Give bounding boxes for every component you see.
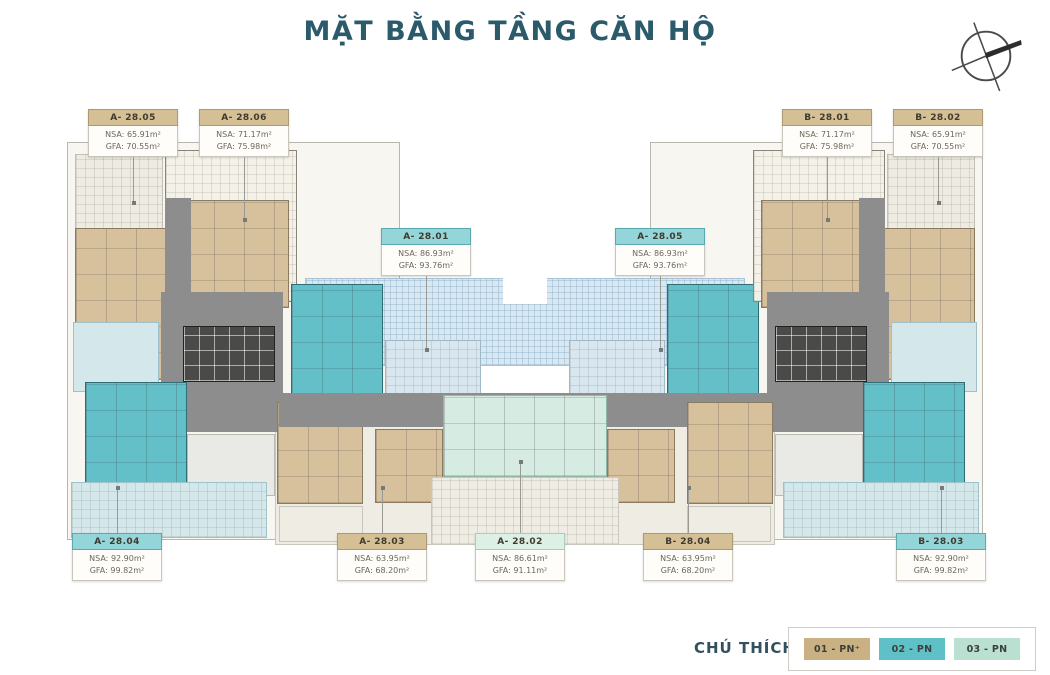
unit-region-a2802[interactable]	[443, 395, 607, 477]
unit-region-a2801[interactable]	[291, 284, 383, 396]
unit-areas: NSA: 86.61m² GFA: 91.11m²	[475, 550, 565, 581]
unit-label-b2801[interactable]: B- 28.01 NSA: 71.17m² GFA: 75.98m²	[782, 109, 872, 157]
leader-line	[133, 157, 134, 203]
unit-areas: NSA: 65.91m² GFA: 70.55m²	[893, 126, 983, 157]
leader-line	[426, 276, 427, 350]
unit-code: B- 28.03	[896, 533, 986, 550]
compass-north-icon	[948, 18, 1024, 94]
unit-label-b2804[interactable]: B- 28.04 NSA: 63.95m² GFA: 68.20m²	[643, 533, 733, 581]
aqua-strip-right	[783, 482, 979, 538]
leader-line	[938, 157, 939, 203]
unit-region-b2803[interactable]	[863, 382, 965, 490]
unit-code: B- 28.04	[643, 533, 733, 550]
unit-region-b2804[interactable]	[687, 402, 773, 504]
unit-code: A- 28.03	[337, 533, 427, 550]
legend-swatch-01pn: 01 - PN⁺	[804, 638, 870, 660]
legend-swatch-02pn: 02 - PN	[879, 638, 945, 660]
unit-label-a2802[interactable]: A- 28.02 NSA: 86.61m² GFA: 91.11m²	[475, 533, 565, 581]
service-core-left	[183, 326, 275, 382]
unit-label-a2804[interactable]: A- 28.04 NSA: 92.90m² GFA: 99.82m²	[72, 533, 162, 581]
legend: 01 - PN⁺ 02 - PN 03 - PN	[788, 627, 1036, 671]
unit-areas: NSA: 92.90m² GFA: 99.82m²	[896, 550, 986, 581]
unit-label-a2805-top[interactable]: A- 28.05 NSA: 65.91m² GFA: 70.55m²	[88, 109, 178, 157]
unit-areas: NSA: 63.95m² GFA: 68.20m²	[643, 550, 733, 581]
unit-areas: NSA: 86.93m² GFA: 93.76m²	[615, 245, 705, 276]
unit-code: A- 28.06	[199, 109, 289, 126]
corridor-left-vertical	[165, 198, 191, 298]
unit-code: B- 28.01	[782, 109, 872, 126]
unit-region-a2804[interactable]	[85, 382, 187, 490]
unit-code: B- 28.02	[893, 109, 983, 126]
unit-label-b2803[interactable]: B- 28.03 NSA: 92.90m² GFA: 99.82m²	[896, 533, 986, 581]
aqua-strip-left	[71, 482, 267, 538]
balcony-notch	[503, 278, 547, 304]
unit-code: A- 28.05	[615, 228, 705, 245]
page-title: MẶT BẰNG TẦNG CĂN HỘ	[0, 16, 1020, 47]
floor-plan-page: MẶT BẰNG TẦNG CĂN HỘ	[0, 0, 1050, 675]
unit-code: A- 28.01	[381, 228, 471, 245]
unit-areas: NSA: 86.93m² GFA: 93.76m²	[381, 245, 471, 276]
leader-line	[660, 276, 661, 350]
unit-areas: NSA: 65.91m² GFA: 70.55m²	[88, 126, 178, 157]
leader-line	[117, 488, 118, 533]
unit-region-a2805-mid[interactable]	[667, 284, 759, 396]
leader-line	[827, 157, 828, 220]
unit-label-a2806[interactable]: A- 28.06 NSA: 71.17m² GFA: 75.98m²	[199, 109, 289, 157]
unit-code: A- 28.02	[475, 533, 565, 550]
legend-swatch-03pn: 03 - PN	[954, 638, 1020, 660]
unit-label-a2805-mid[interactable]: A- 28.05 NSA: 86.93m² GFA: 93.76m²	[615, 228, 705, 276]
service-core-right	[775, 326, 867, 382]
unit-areas: NSA: 71.17m² GFA: 75.98m²	[199, 126, 289, 157]
leader-line	[941, 488, 942, 533]
unit-areas: NSA: 63.95m² GFA: 68.20m²	[337, 550, 427, 581]
unit-code: A- 28.05	[88, 109, 178, 126]
unit-label-b2802[interactable]: B- 28.02 NSA: 65.91m² GFA: 70.55m²	[893, 109, 983, 157]
unit-label-a2803[interactable]: A- 28.03 NSA: 63.95m² GFA: 68.20m²	[337, 533, 427, 581]
unit-code: A- 28.04	[72, 533, 162, 550]
unit-label-a2801[interactable]: A- 28.01 NSA: 86.93m² GFA: 93.76m²	[381, 228, 471, 276]
blue-room-right	[569, 340, 665, 396]
unit-areas: NSA: 92.90m² GFA: 99.82m²	[72, 550, 162, 581]
legend-title: CHÚ THÍCH	[694, 639, 796, 657]
unit-areas: NSA: 71.17m² GFA: 75.98m²	[782, 126, 872, 157]
corridor-right-vertical	[859, 198, 885, 298]
leader-line	[520, 462, 521, 533]
blue-room-left	[385, 340, 481, 396]
leader-line	[382, 488, 383, 533]
leader-line	[688, 488, 689, 533]
leader-line	[244, 157, 245, 220]
